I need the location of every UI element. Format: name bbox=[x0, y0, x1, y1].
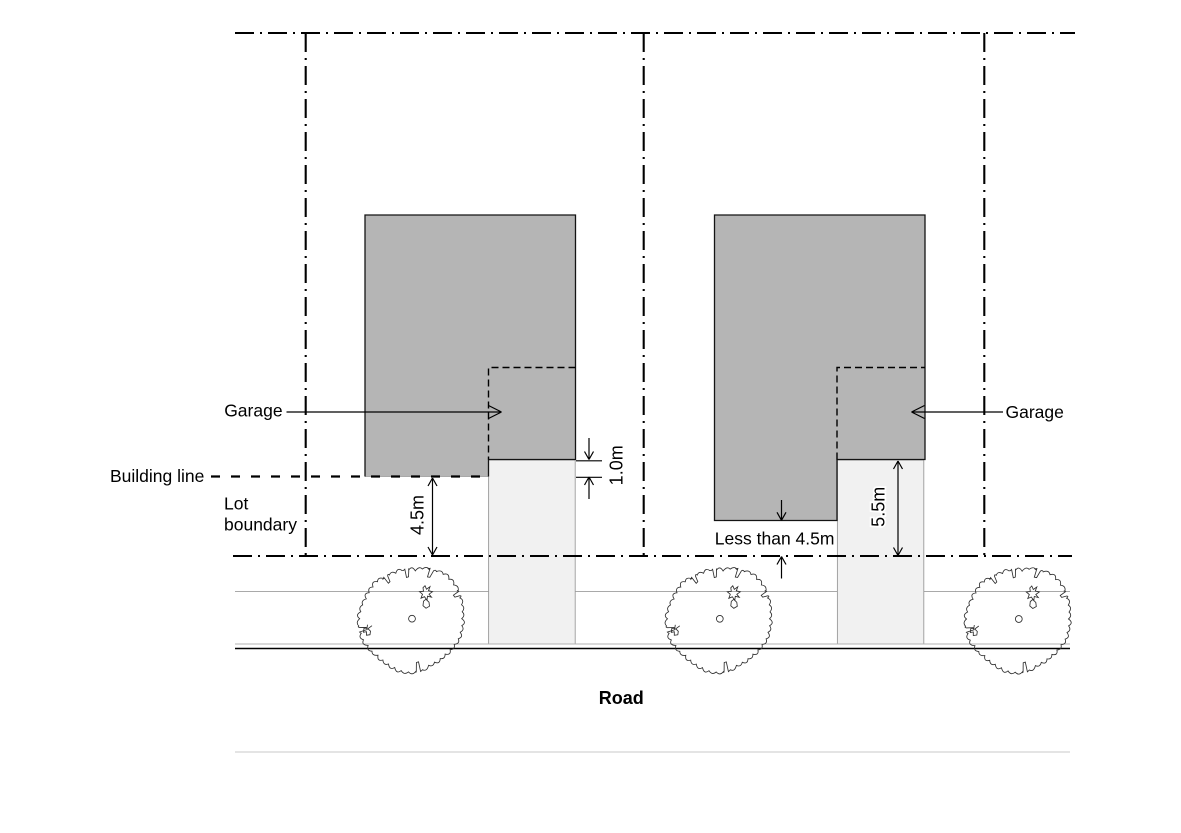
svg-text:Building line: Building line bbox=[110, 466, 204, 486]
svg-text:5.5m: 5.5m bbox=[869, 487, 889, 527]
svg-text:4.5m: 4.5m bbox=[407, 495, 427, 535]
svg-text:Garage: Garage bbox=[224, 401, 282, 421]
svg-text:Less than 4.5m: Less than 4.5m bbox=[715, 528, 835, 548]
svg-text:Lot: Lot bbox=[224, 494, 248, 514]
svg-text:Garage: Garage bbox=[1006, 402, 1064, 422]
svg-text:Road: Road bbox=[599, 688, 644, 708]
svg-text:boundary: boundary bbox=[224, 515, 297, 535]
svg-text:1.0m: 1.0m bbox=[607, 445, 627, 485]
